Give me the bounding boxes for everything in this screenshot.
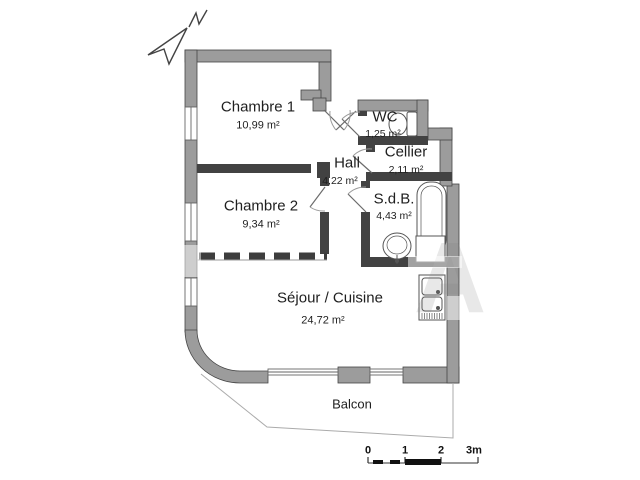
room-label-sejour: Séjour / Cuisine: [277, 291, 383, 306]
kitchen-sink-icon: [419, 275, 445, 320]
door-leaf-sdb: [348, 194, 366, 212]
wall-segment: [447, 184, 459, 383]
wall-segment: [338, 367, 370, 383]
room-area-cellier: 2,11 m²: [389, 165, 424, 176]
room-label-balcon: Balcon: [332, 398, 372, 411]
room-label-sdb: S.d.B.: [374, 192, 415, 207]
door-arc-chambre2: [310, 207, 325, 211]
scale-label-3m: 3m: [466, 446, 482, 457]
room-area-hall: 4,22 m²: [322, 176, 358, 187]
room-area-sejour: 24,72 m²: [301, 316, 344, 327]
wall-segment: [417, 100, 428, 140]
wall-divider-ch1-ch2: [197, 164, 311, 173]
wall-segment: [185, 50, 331, 62]
room-label-hall: Hall: [334, 156, 360, 171]
wall-segment: [185, 50, 197, 107]
floor-plan: A Chambre 1 10,99 m² WC 1,25 m² Cellier …: [0, 0, 640, 480]
wall-rounded-corner: [185, 330, 268, 383]
wall-segment: [185, 306, 197, 332]
room-label-cellier: Cellier: [385, 145, 428, 160]
floor-plan-linework: [0, 0, 640, 480]
room-area-chambre1: 10,99 m²: [236, 121, 279, 132]
door-arc-sdb: [348, 187, 366, 194]
wall-segment: [185, 140, 197, 203]
scale-label-2: 2: [438, 446, 444, 457]
scale-label-1: 1: [402, 446, 408, 457]
door-leaf-wc: [342, 119, 360, 137]
room-label-chambre1: Chambre 1: [221, 100, 295, 115]
scale-bar: [368, 457, 478, 465]
room-area-sdb: 4,43 m²: [376, 211, 412, 222]
wall-sdb-left: [361, 212, 370, 260]
wall-ch2-right-lower: [320, 212, 329, 254]
scale-label-0: 0: [365, 446, 371, 457]
wall-segment: [185, 241, 197, 278]
room-label-wc: WC: [373, 110, 398, 125]
room-area-wc: 1,25 m²: [365, 129, 401, 140]
door-leaf-chambre2: [310, 187, 325, 207]
wall-segment: [313, 98, 326, 111]
room-area-chambre2: 9,34 m²: [242, 220, 279, 231]
balcony-outline: [201, 374, 453, 438]
washing-machine-icon: [416, 236, 445, 262]
room-label-chambre2: Chambre 2: [224, 199, 298, 214]
